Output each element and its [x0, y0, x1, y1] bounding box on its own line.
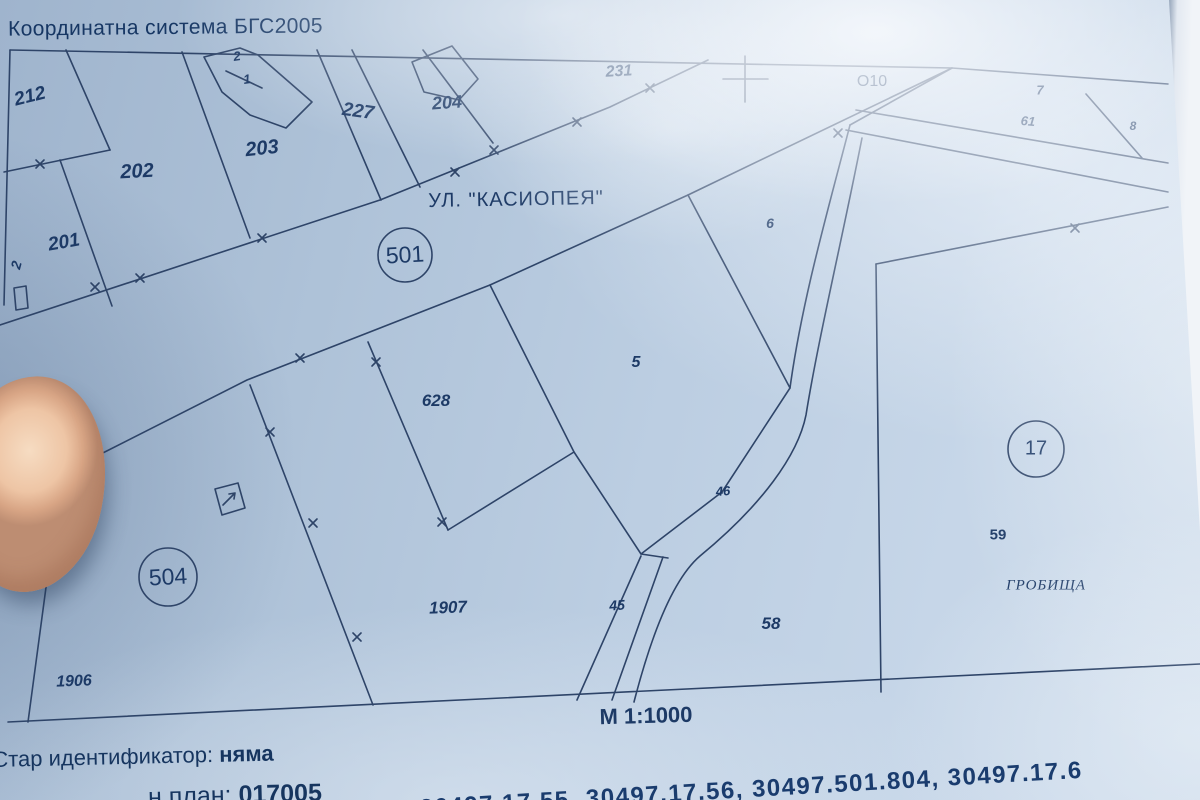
quarter-circles	[139, 228, 1064, 606]
parcel-number-label: 8	[1130, 119, 1137, 133]
parcel-number-label: 45	[609, 596, 626, 613]
parcel-number-label: 203	[244, 136, 280, 162]
parcel-number-label: 231	[605, 62, 633, 81]
map-frame	[4, 50, 1200, 722]
parcel-number-label: 202	[120, 160, 155, 185]
parcel-boundary-lines	[4, 50, 1168, 722]
old-identifier-label: Стар идентификатор:	[0, 742, 213, 772]
cemetery-label: ГРОБИЩА	[1006, 578, 1086, 595]
parcel-number-label: 5	[632, 354, 641, 372]
parcel-number-label: 1907	[429, 597, 468, 618]
parcel-number-label: 628	[422, 391, 450, 411]
parcel-number-label: 6	[766, 215, 774, 231]
map-scale-label: М 1:1000	[599, 702, 693, 730]
previous-plan-line: н план: 017005	[148, 779, 323, 800]
survey-cross-marker	[723, 56, 768, 102]
parcel-number-label: 61	[1020, 113, 1036, 129]
parcel-number-label: 227	[341, 99, 375, 125]
parcel-number-label: 1906	[56, 672, 92, 691]
parcel-number-label: 46	[715, 483, 730, 499]
geodetic-point-label: О10	[857, 73, 887, 91]
parcel-number-label: 58	[762, 614, 781, 634]
highlighted-parcel-5-outline	[490, 195, 790, 558]
street-name-label: УЛ. "КАСИОПЕЯ"	[428, 187, 604, 213]
previous-plan-label: н план:	[148, 781, 232, 800]
parcel-number-label: 7	[1036, 83, 1043, 98]
boundary-tick-marks	[36, 84, 1079, 641]
cadastral-map-photo: Координатна система БГС2005	[0, 0, 1200, 800]
previous-plan-value: 017005	[238, 779, 322, 800]
parcel-number-label: 204	[431, 91, 462, 114]
quarter-number-label: 17	[1025, 438, 1047, 461]
quarter-number-label: 501	[385, 241, 425, 270]
quarter-number-label: 504	[148, 563, 188, 592]
old-identifier-value: няма	[219, 741, 274, 767]
parcel-number-label: 59	[990, 527, 1007, 544]
